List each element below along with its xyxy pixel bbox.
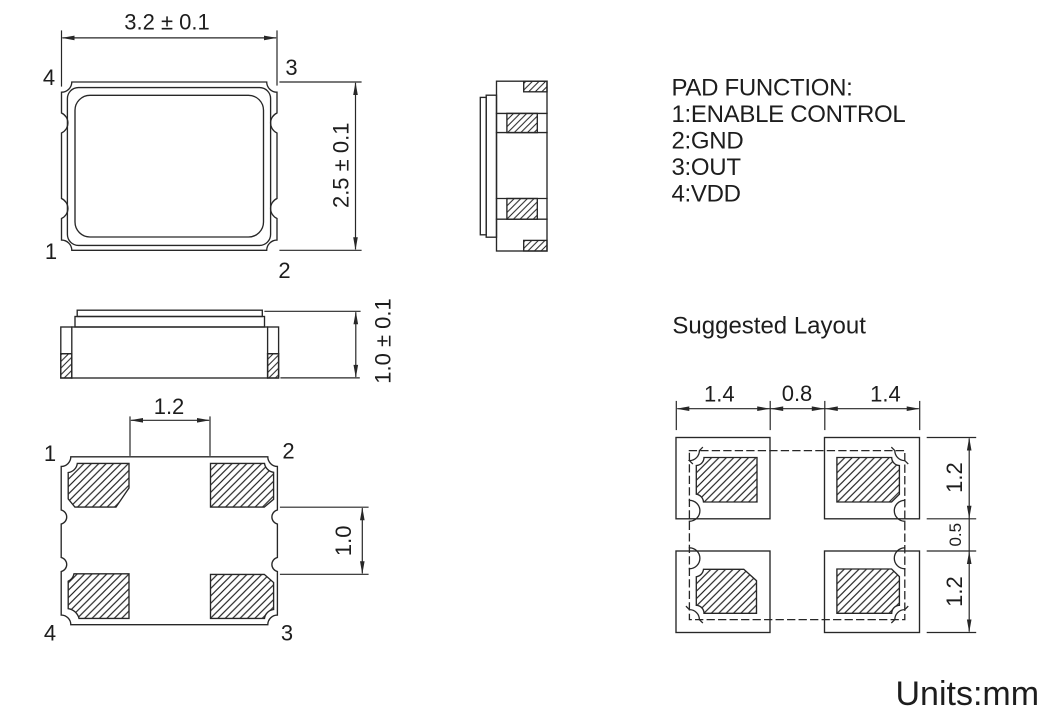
- svg-text:2: 2: [282, 439, 294, 464]
- svg-text:0.5: 0.5: [946, 523, 965, 547]
- svg-text:2:GND: 2:GND: [672, 127, 744, 154]
- svg-text:4: 4: [43, 65, 55, 90]
- svg-text:3: 3: [281, 621, 293, 646]
- svg-text:1.2: 1.2: [942, 576, 967, 607]
- svg-text:2: 2: [278, 258, 290, 283]
- svg-text:4:VDD: 4:VDD: [672, 180, 741, 207]
- svg-text:1:ENABLE CONTROL: 1:ENABLE CONTROL: [672, 101, 906, 128]
- svg-text:4: 4: [44, 621, 56, 646]
- svg-text:1: 1: [44, 441, 56, 466]
- svg-text:1.2: 1.2: [942, 462, 967, 493]
- svg-text:3:OUT: 3:OUT: [672, 154, 742, 181]
- svg-text:1.2: 1.2: [154, 394, 185, 419]
- svg-text:Units:mm: Units:mm: [896, 675, 1040, 713]
- svg-text:1.4: 1.4: [870, 381, 901, 406]
- svg-text:1.4: 1.4: [704, 381, 735, 406]
- svg-text:2.5 ± 0.1: 2.5 ± 0.1: [328, 123, 353, 208]
- svg-text:3.2 ± 0.1: 3.2 ± 0.1: [124, 10, 209, 35]
- svg-text:3: 3: [285, 55, 297, 80]
- svg-text:Suggested Layout: Suggested Layout: [672, 313, 866, 340]
- svg-text:1: 1: [45, 239, 57, 264]
- svg-text:1.0 ± 0.1: 1.0 ± 0.1: [371, 298, 396, 383]
- svg-text:1.0: 1.0: [331, 526, 356, 557]
- svg-text:0.8: 0.8: [782, 381, 813, 406]
- svg-text:PAD FUNCTION:: PAD FUNCTION:: [672, 74, 853, 101]
